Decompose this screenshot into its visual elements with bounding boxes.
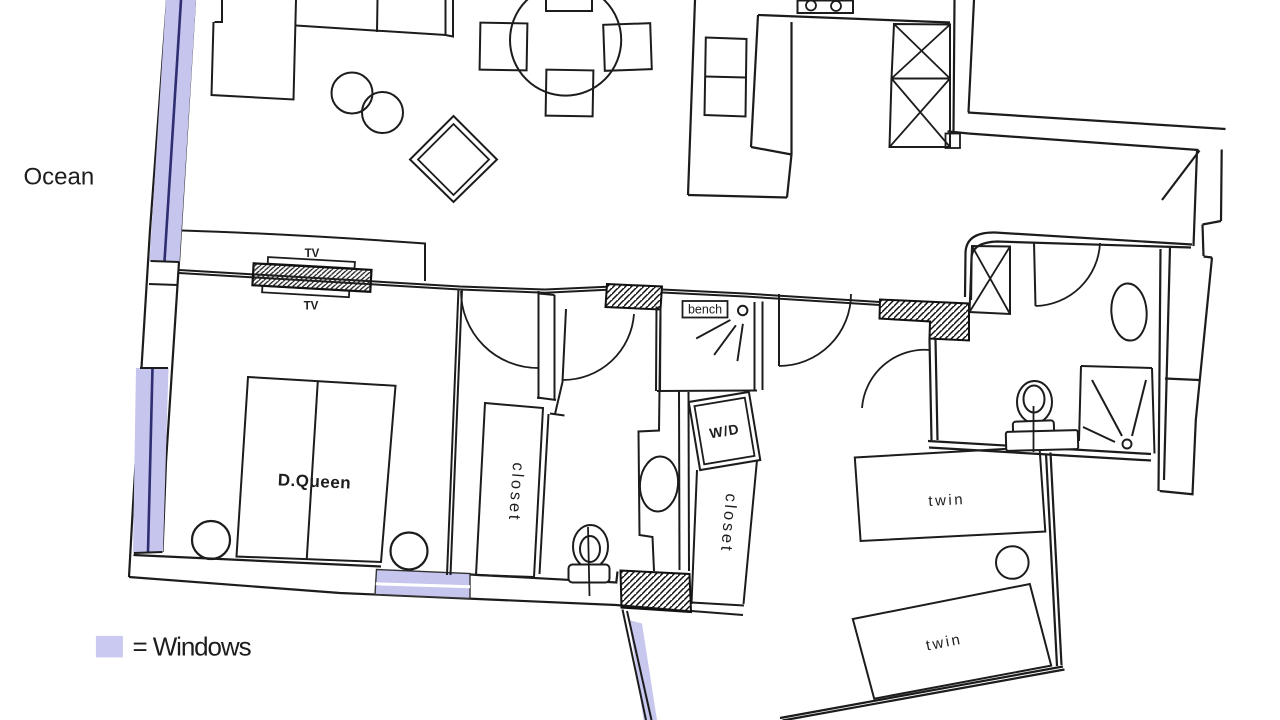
svg-text:= Windows: = Windows bbox=[133, 632, 252, 662]
svg-text:twin: twin bbox=[928, 491, 966, 510]
svg-text:TV: TV bbox=[305, 248, 320, 260]
svg-text:TV: TV bbox=[304, 301, 319, 313]
svg-text:bench: bench bbox=[688, 303, 722, 317]
svg-text:Ocean: Ocean bbox=[24, 164, 95, 191]
svg-text:D.Queen: D.Queen bbox=[277, 470, 351, 492]
